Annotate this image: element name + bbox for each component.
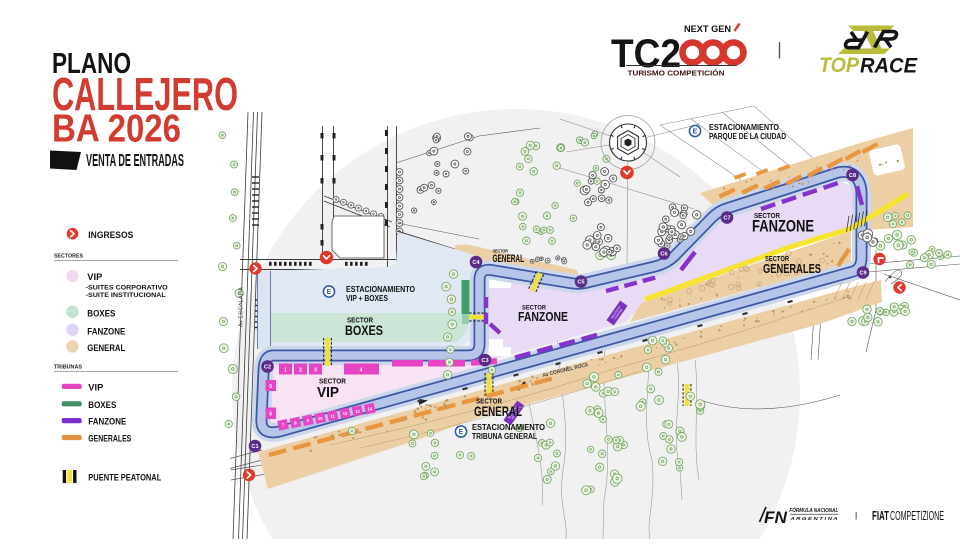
svg-text:TURISMO COMPETICIÓN: TURISMO COMPETICIÓN xyxy=(628,69,725,78)
svg-text:PARQUE DE LA CIUDAD: PARQUE DE LA CIUDAD xyxy=(709,132,786,141)
svg-text:ESTACIONAMIENTO: ESTACIONAMIENTO xyxy=(346,285,415,294)
svg-text:FANZONE: FANZONE xyxy=(88,417,126,428)
svg-text:2: 2 xyxy=(299,368,302,374)
svg-text:-SUITE INSTITUCIONAL: -SUITE INSTITUCIONAL xyxy=(86,292,166,299)
svg-text:C8: C8 xyxy=(849,173,856,179)
svg-text:GENERAL: GENERAL xyxy=(474,403,522,419)
svg-text:11: 11 xyxy=(330,414,335,419)
svg-text:BOXES: BOXES xyxy=(87,308,115,319)
svg-text:C5: C5 xyxy=(577,280,584,286)
svg-text:C6: C6 xyxy=(660,252,667,258)
svg-text:BOXES: BOXES xyxy=(88,400,116,411)
svg-text:GENERALES: GENERALES xyxy=(88,434,131,445)
svg-text:ESTACIONAMIENTO: ESTACIONAMIENTO xyxy=(709,123,779,132)
svg-text:TRIBUNAS: TRIBUNAS xyxy=(54,365,82,371)
svg-text:COMPETIZIONE: COMPETIZIONE xyxy=(890,509,944,523)
svg-text:FN: FN xyxy=(764,508,788,527)
svg-text:VENTA DE ENTRADAS: VENTA DE ENTRADAS xyxy=(86,150,184,170)
svg-text:A R G E N T I N A: A R G E N T I N A xyxy=(789,516,837,521)
svg-text:3: 3 xyxy=(314,368,317,374)
svg-text:E: E xyxy=(327,289,332,296)
svg-text:VIP: VIP xyxy=(88,383,104,394)
svg-text:SECTORES: SECTORES xyxy=(54,254,83,260)
svg-text:TRIBUNA GENERAL: TRIBUNA GENERAL xyxy=(472,432,537,441)
svg-text:10: 10 xyxy=(318,416,323,421)
svg-text:C3: C3 xyxy=(481,358,488,364)
svg-text:VIP + BOXES: VIP + BOXES xyxy=(346,294,389,303)
svg-text:Av ESCALADA: Av ESCALADA xyxy=(239,286,245,327)
svg-text:C9: C9 xyxy=(859,271,866,277)
svg-text:6: 6 xyxy=(269,412,272,418)
svg-text:FANZONE: FANZONE xyxy=(518,309,568,324)
svg-text:12: 12 xyxy=(343,411,348,416)
svg-text:GENERAL: GENERAL xyxy=(87,343,125,354)
svg-text:TC2: TC2 xyxy=(611,32,681,76)
svg-text:|: | xyxy=(855,511,857,520)
svg-text:BA 2026: BA 2026 xyxy=(52,108,181,151)
svg-text:13: 13 xyxy=(355,409,360,414)
svg-text:C1: C1 xyxy=(251,444,258,450)
svg-text:E: E xyxy=(693,129,698,136)
svg-text:FIAT: FIAT xyxy=(872,509,889,523)
svg-text:VIP: VIP xyxy=(87,272,103,283)
svg-text:TOP: TOP xyxy=(819,54,860,77)
svg-text:C7: C7 xyxy=(723,216,730,222)
svg-text:-SUITES CORPORATIVO: -SUITES CORPORATIVO xyxy=(86,284,168,291)
svg-text:C4: C4 xyxy=(472,260,480,266)
svg-text:GENERAL: GENERAL xyxy=(493,253,525,265)
svg-text:4: 4 xyxy=(360,368,363,374)
svg-text:5: 5 xyxy=(269,384,272,390)
svg-text:ESTACIONAMIENTO: ESTACIONAMIENTO xyxy=(472,423,545,432)
svg-text:FÓRMULA NACIONAL: FÓRMULA NACIONAL xyxy=(789,507,838,514)
svg-text:C2: C2 xyxy=(264,365,271,371)
svg-text:VIP: VIP xyxy=(317,384,339,401)
svg-text:FANZONE: FANZONE xyxy=(752,217,814,236)
svg-text:NEXT GEN: NEXT GEN xyxy=(684,24,731,35)
svg-text:E: E xyxy=(459,429,464,436)
svg-text:FANZONE: FANZONE xyxy=(87,326,125,337)
svg-text:GENERALES: GENERALES xyxy=(763,261,821,276)
svg-text:PUENTE PEATONAL: PUENTE PEATONAL xyxy=(88,472,161,483)
svg-text:14: 14 xyxy=(367,407,372,412)
svg-text:1: 1 xyxy=(284,368,287,374)
svg-text:INGRESOS: INGRESOS xyxy=(88,230,133,241)
svg-text:BOXES: BOXES xyxy=(345,322,383,338)
svg-text:RACE: RACE xyxy=(860,55,918,78)
